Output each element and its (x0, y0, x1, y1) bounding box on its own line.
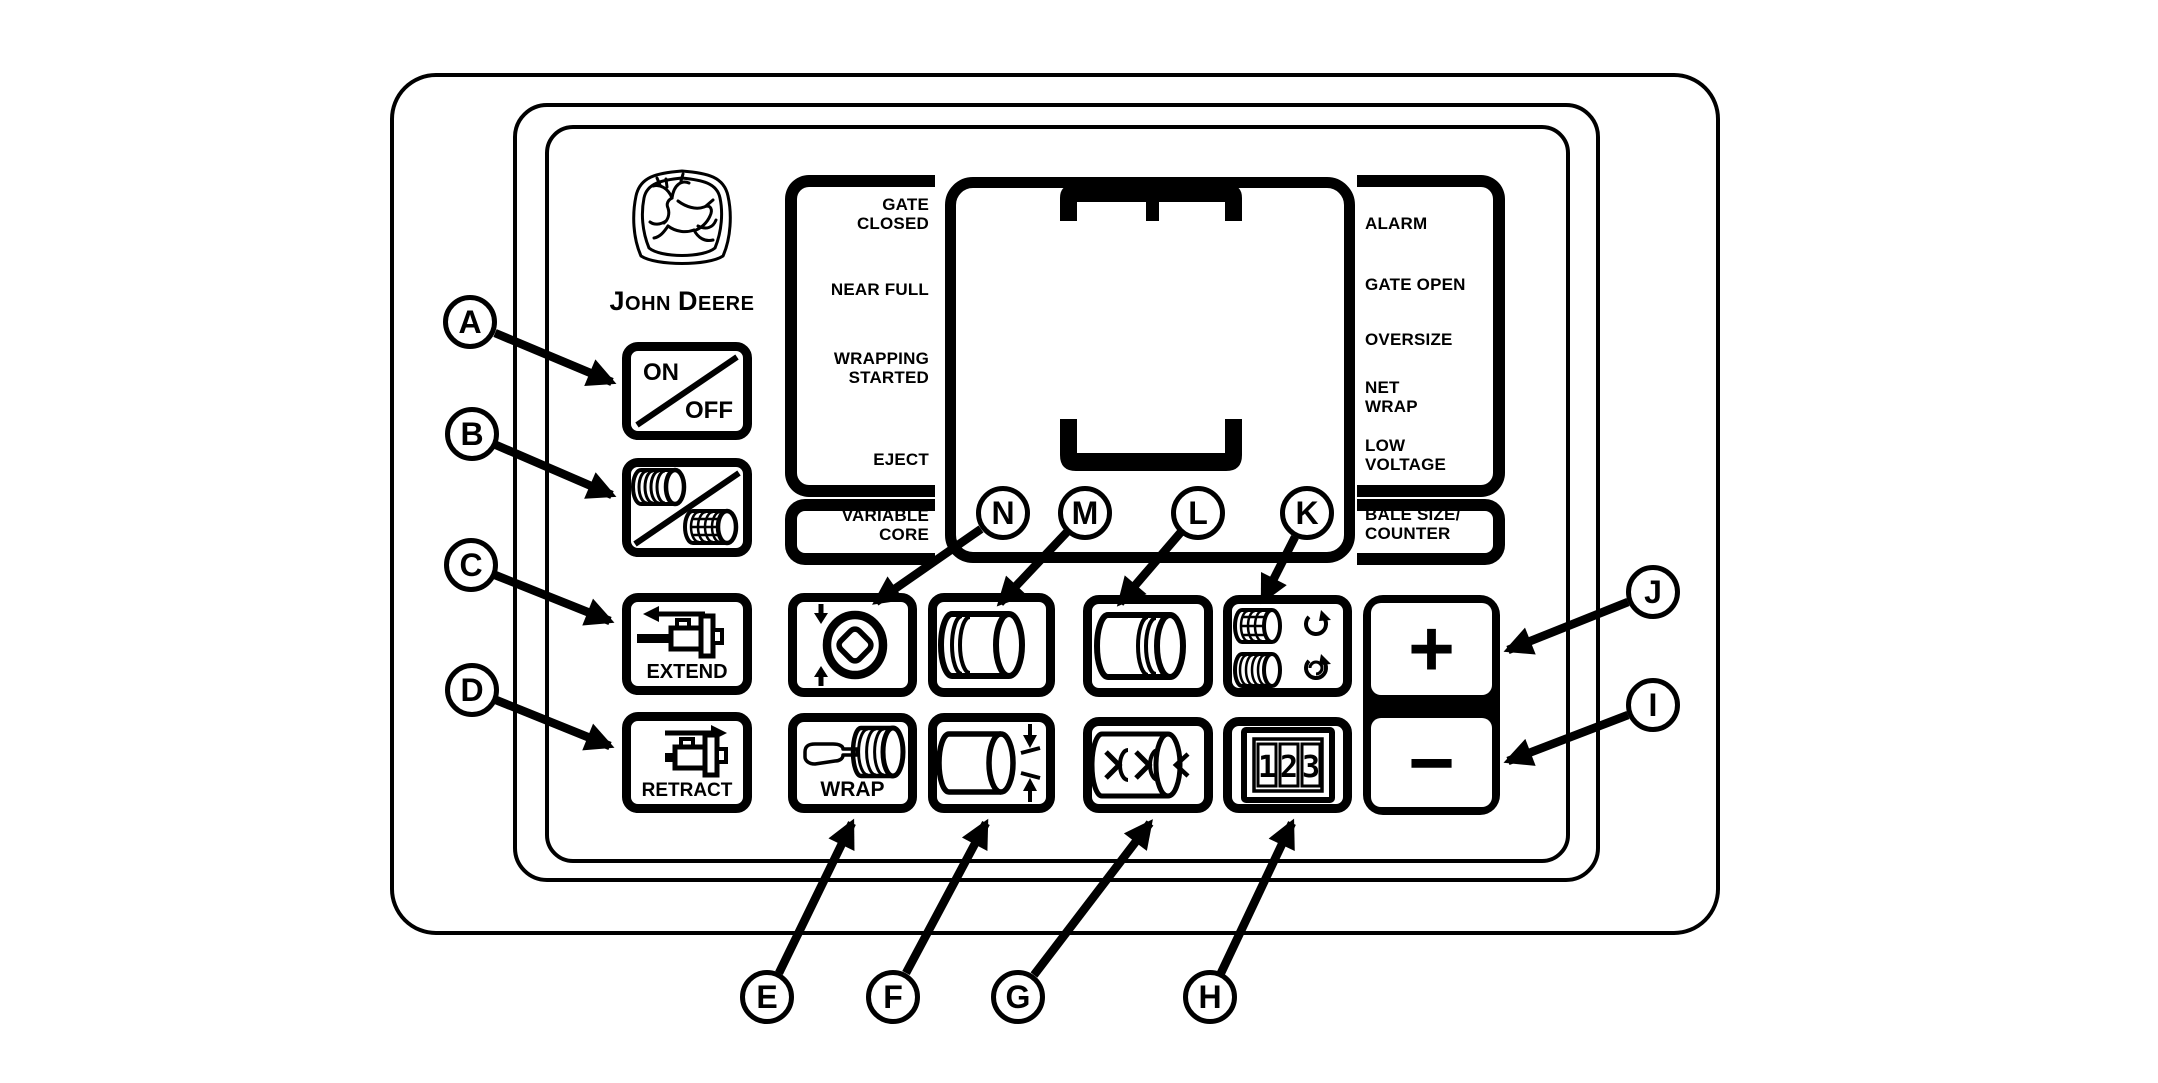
callout-k: K (1280, 486, 1334, 540)
wrap-count-button[interactable] (1223, 595, 1352, 697)
extend-label: EXTEND (631, 661, 743, 684)
baler-monitor-diagram: JOHNDEERE GATECLOSED NEAR FULL WRAPPINGS… (0, 0, 2158, 1083)
decrease-button[interactable]: − (1371, 718, 1492, 807)
counter-display-icon: 1 2 3 (1232, 726, 1343, 804)
callout-j: J (1626, 565, 1680, 619)
status-label-wrapping-started: WRAPPINGSTARTED (834, 349, 929, 387)
john-deere-wordmark: JOHNDEERE (597, 286, 767, 317)
callout-c: C (444, 538, 498, 592)
callout-i: I (1626, 678, 1680, 732)
callout-a: A (443, 295, 497, 349)
plus-minus-stack: + − (1363, 595, 1500, 815)
power-off-label: OFF (685, 397, 733, 425)
wrap-label: WRAP (797, 778, 908, 802)
retract-label: RETRACT (631, 780, 743, 802)
actuator-extend-icon (631, 602, 743, 660)
extend-button[interactable]: EXTEND (622, 593, 752, 695)
bale-left-rings-icon (937, 602, 1046, 688)
digit-3: 3 (1302, 750, 1320, 785)
bale-right-rings-button[interactable] (1083, 595, 1213, 697)
core-size-icon (797, 602, 908, 688)
callout-b: B (445, 407, 499, 461)
callout-g: G (991, 970, 1045, 1024)
bale-size-limit-button[interactable] (928, 713, 1055, 813)
minus-icon: − (1408, 723, 1455, 803)
callout-m: M (1058, 486, 1112, 540)
rotate-arrow-multi-icon (1302, 654, 1331, 682)
status-label-net-wrap: NETWRAP (1365, 378, 1418, 416)
john-deere-logo (626, 168, 738, 268)
digit-1: 1 (1258, 750, 1276, 785)
retract-button[interactable]: RETRACT (622, 712, 752, 813)
status-label-variable-core: VARIABLECORE (842, 506, 929, 544)
power-button[interactable]: ON OFF (622, 342, 752, 440)
callout-f: F (866, 970, 920, 1024)
bale-right-rings-icon (1092, 604, 1204, 688)
net-roll-icon (685, 511, 736, 543)
actuator-retract-icon (631, 721, 743, 779)
rotate-arrow-icon (1302, 610, 1331, 638)
bale-bottom-icon (1056, 419, 1246, 471)
twine-net-select-button[interactable] (622, 458, 752, 557)
callout-n: N (976, 486, 1030, 540)
pointing-hand-icon (805, 744, 857, 764)
callout-e: E (740, 970, 794, 1024)
bale-top-icon (1056, 183, 1246, 221)
bale-diameter-button[interactable] (1083, 717, 1213, 813)
status-label-oversize: OVERSIZE (1365, 330, 1453, 349)
logo-border (634, 171, 731, 264)
digit-2: 2 (1280, 750, 1298, 785)
plus-icon: + (1408, 609, 1455, 689)
twine-roll-icon (853, 728, 903, 776)
net-roll-icon (1235, 610, 1280, 642)
twine-roll-icon (633, 470, 684, 504)
status-label-alarm: ALARM (1365, 214, 1427, 233)
callout-l: L (1171, 486, 1225, 540)
status-label-eject: EJECT (873, 450, 929, 469)
increase-button[interactable]: + (1371, 603, 1492, 695)
callout-d: D (445, 663, 499, 717)
variable-core-button[interactable] (788, 593, 917, 697)
status-label-low-voltage: LOWVOLTAGE (1365, 436, 1446, 474)
power-on-label: ON (643, 359, 679, 387)
bale-left-rings-button[interactable] (928, 593, 1055, 697)
wrap-button[interactable]: WRAP (788, 713, 917, 813)
bale-diameter-icon (1092, 726, 1204, 804)
status-label-bale-size-counter: BALE SIZE/COUNTER (1365, 505, 1461, 543)
twine-roll-icon (1235, 654, 1280, 686)
counter-display-button[interactable]: 1 2 3 (1223, 717, 1352, 813)
status-label-near-full: NEAR FULL (831, 280, 929, 299)
status-label-gate-closed: GATECLOSED (857, 195, 929, 233)
callout-h: H (1183, 970, 1237, 1024)
bale-limit-icon (937, 722, 1046, 804)
status-label-gate-open: GATE OPEN (1365, 275, 1466, 294)
